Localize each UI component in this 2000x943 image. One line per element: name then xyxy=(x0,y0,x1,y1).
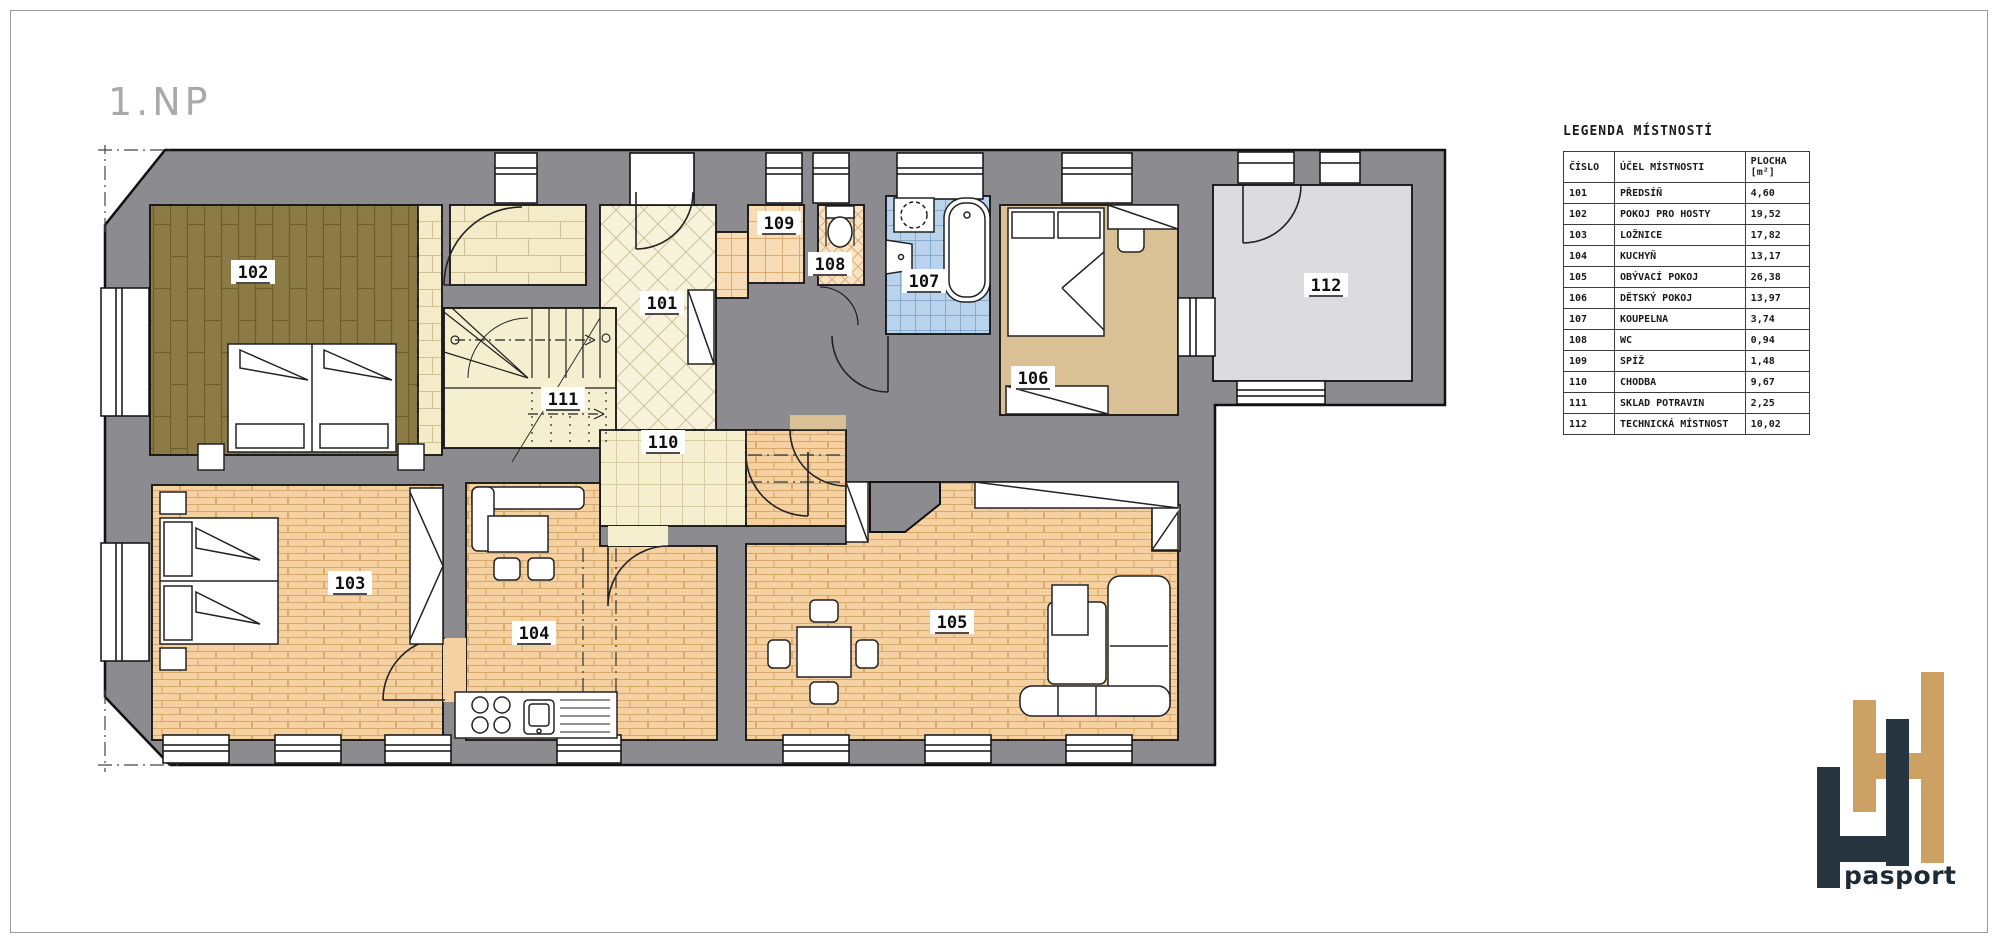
room-number-101: 101 xyxy=(647,294,678,314)
entrance-opening xyxy=(630,153,694,205)
room-label-106: 106 xyxy=(1011,366,1055,390)
legend-cell-area: 9,67 xyxy=(1745,372,1809,393)
room-number-111: 111 xyxy=(548,390,579,410)
legend-cell-purpose: SKLAD POTRAVIN xyxy=(1615,393,1746,414)
window xyxy=(101,288,149,416)
room-label-102: 102 xyxy=(231,260,275,284)
legend-cell-area: 10,02 xyxy=(1745,414,1809,435)
window xyxy=(813,153,849,203)
room-number-106: 106 xyxy=(1018,369,1049,389)
window xyxy=(495,153,537,203)
room-number-104: 104 xyxy=(519,624,550,644)
washing-machine-107 xyxy=(894,198,934,232)
legend-cell-number: 104 xyxy=(1564,246,1615,267)
legend-cell-purpose: POKOJ PRO HOSTY xyxy=(1615,204,1746,225)
legend-cell-number: 103 xyxy=(1564,225,1615,246)
wardrobe-103 xyxy=(410,488,443,644)
legend-cell-area: 2,25 xyxy=(1745,393,1809,414)
room-label-111: 111 xyxy=(541,387,585,411)
room-label-104: 104 xyxy=(512,621,556,645)
hall-connector-tiles xyxy=(716,232,748,298)
room-label-107: 107 xyxy=(902,269,946,293)
window xyxy=(385,735,451,763)
window xyxy=(557,735,621,763)
legend-cell-purpose: CHODBA xyxy=(1615,372,1746,393)
legend-row: 108WC0,94 xyxy=(1564,330,1810,351)
legend-cell-area: 1,48 xyxy=(1745,351,1809,372)
kitchen-counter xyxy=(455,692,617,738)
hall-planks xyxy=(450,205,586,285)
legend-cell-number: 108 xyxy=(1564,330,1615,351)
legend-title: LEGENDA MÍSTNOSTÍ xyxy=(1563,124,1813,139)
window xyxy=(766,153,802,203)
legend-row: 102POKOJ PRO HOSTY19,52 xyxy=(1564,204,1810,225)
bed-102 xyxy=(198,344,424,470)
legend-header-purpose: ÚČEL MÍSTNOSTI xyxy=(1615,152,1746,183)
logo-text: pasport xyxy=(1844,861,1957,890)
window xyxy=(783,735,849,763)
legend-row: 111SKLAD POTRAVIN2,25 xyxy=(1564,393,1810,414)
legend-row: 109SPÍŽ1,48 xyxy=(1564,351,1810,372)
legend-header-row: ČÍSLO ÚČEL MÍSTNOSTI PLOCHA[m²] xyxy=(1564,152,1810,183)
room-label-112: 112 xyxy=(1304,273,1348,297)
legend-cell-purpose: LOŽNICE xyxy=(1615,225,1746,246)
legend-cell-purpose: SPÍŽ xyxy=(1615,351,1746,372)
room-number-107: 107 xyxy=(909,272,940,292)
legend-row: 112TECHNICKÁ MÍSTNOST10,02 xyxy=(1564,414,1810,435)
legend-cell-number: 107 xyxy=(1564,309,1615,330)
legend-cell-purpose: TECHNICKÁ MÍSTNOST xyxy=(1615,414,1746,435)
legend-table: ČÍSLO ÚČEL MÍSTNOSTI PLOCHA[m²] 101PŘEDS… xyxy=(1563,151,1810,435)
room-label-108: 108 xyxy=(808,252,852,276)
legend-cell-purpose: OBÝVACÍ POKOJ xyxy=(1615,267,1746,288)
legend-cell-purpose: KOUPELNA xyxy=(1615,309,1746,330)
legend-cell-number: 106 xyxy=(1564,288,1615,309)
room-label-101: 101 xyxy=(640,291,684,315)
staircase-floor xyxy=(444,308,616,448)
room-label-105: 105 xyxy=(930,610,974,634)
legend-cell-area: 13,97 xyxy=(1745,288,1809,309)
legend-cell-number: 105 xyxy=(1564,267,1615,288)
room-number-112: 112 xyxy=(1311,276,1342,296)
window xyxy=(1237,381,1325,404)
window xyxy=(1062,153,1132,203)
window xyxy=(1178,298,1215,356)
room-number-105: 105 xyxy=(937,613,968,633)
room-label-110: 110 xyxy=(641,430,685,454)
wardrobe-101 xyxy=(688,290,714,364)
room-number-103: 103 xyxy=(335,574,366,594)
bed-103 xyxy=(160,492,278,670)
legend-row: 104KUCHYŇ13,17 xyxy=(1564,246,1810,267)
window xyxy=(275,735,341,763)
legend-row: 101PŘEDSÍŇ4,60 xyxy=(1564,183,1810,204)
window xyxy=(1066,735,1132,763)
legend-cell-purpose: DĚTSKÝ POKOJ xyxy=(1615,288,1746,309)
legend-row: 107KOUPELNA3,74 xyxy=(1564,309,1810,330)
room-legend: LEGENDA MÍSTNOSTÍ ČÍSLO ÚČEL MÍSTNOSTI P… xyxy=(1563,124,1813,435)
room-number-110: 110 xyxy=(648,433,679,453)
legend-cell-number: 102 xyxy=(1564,204,1615,225)
room-number-102: 102 xyxy=(238,263,269,283)
legend-cell-area: 4,60 xyxy=(1745,183,1809,204)
room-label-109: 109 xyxy=(757,211,801,235)
legend-cell-number: 101 xyxy=(1564,183,1615,204)
legend-row: 106DĚTSKÝ POKOJ13,97 xyxy=(1564,288,1810,309)
legend-cell-area: 17,82 xyxy=(1745,225,1809,246)
legend-cell-area: 13,17 xyxy=(1745,246,1809,267)
legend-cell-purpose: WC xyxy=(1615,330,1746,351)
room-floor-105-vestibule xyxy=(746,430,846,526)
legend-row: 110CHODBA9,67 xyxy=(1564,372,1810,393)
room-number-109: 109 xyxy=(764,214,795,234)
window xyxy=(163,735,229,763)
legend-header-number: ČÍSLO xyxy=(1564,152,1615,183)
legend-cell-purpose: KUCHYŇ xyxy=(1615,246,1746,267)
legend-cell-purpose: PŘEDSÍŇ xyxy=(1615,183,1746,204)
legend-header-area-line1: PLOCHA xyxy=(1751,156,1787,167)
legend-header-area: PLOCHA[m²] xyxy=(1745,152,1809,183)
legend-cell-area: 19,52 xyxy=(1745,204,1809,225)
legend-cell-area: 0,94 xyxy=(1745,330,1809,351)
window xyxy=(897,153,983,199)
bathtub-107 xyxy=(944,198,990,302)
window xyxy=(925,735,991,763)
legend-row: 105OBÝVACÍ POKOJ26,38 xyxy=(1564,267,1810,288)
legend-cell-number: 109 xyxy=(1564,351,1615,372)
legend-header-area-line2: [m²] xyxy=(1751,167,1775,178)
legend-cell-number: 112 xyxy=(1564,414,1615,435)
window xyxy=(1238,152,1294,183)
hall-plank-strip xyxy=(418,205,442,455)
room-number-108: 108 xyxy=(815,255,846,275)
window xyxy=(1320,152,1360,183)
legend-row: 103LOŽNICE17,82 xyxy=(1564,225,1810,246)
legend-cell-number: 110 xyxy=(1564,372,1615,393)
window xyxy=(101,543,149,661)
legend-cell-number: 111 xyxy=(1564,393,1615,414)
legend-cell-area: 26,38 xyxy=(1745,267,1809,288)
sink-107 xyxy=(886,240,912,274)
room-label-103: 103 xyxy=(328,571,372,595)
toilet-108 xyxy=(826,206,854,247)
legend-cell-area: 3,74 xyxy=(1745,309,1809,330)
